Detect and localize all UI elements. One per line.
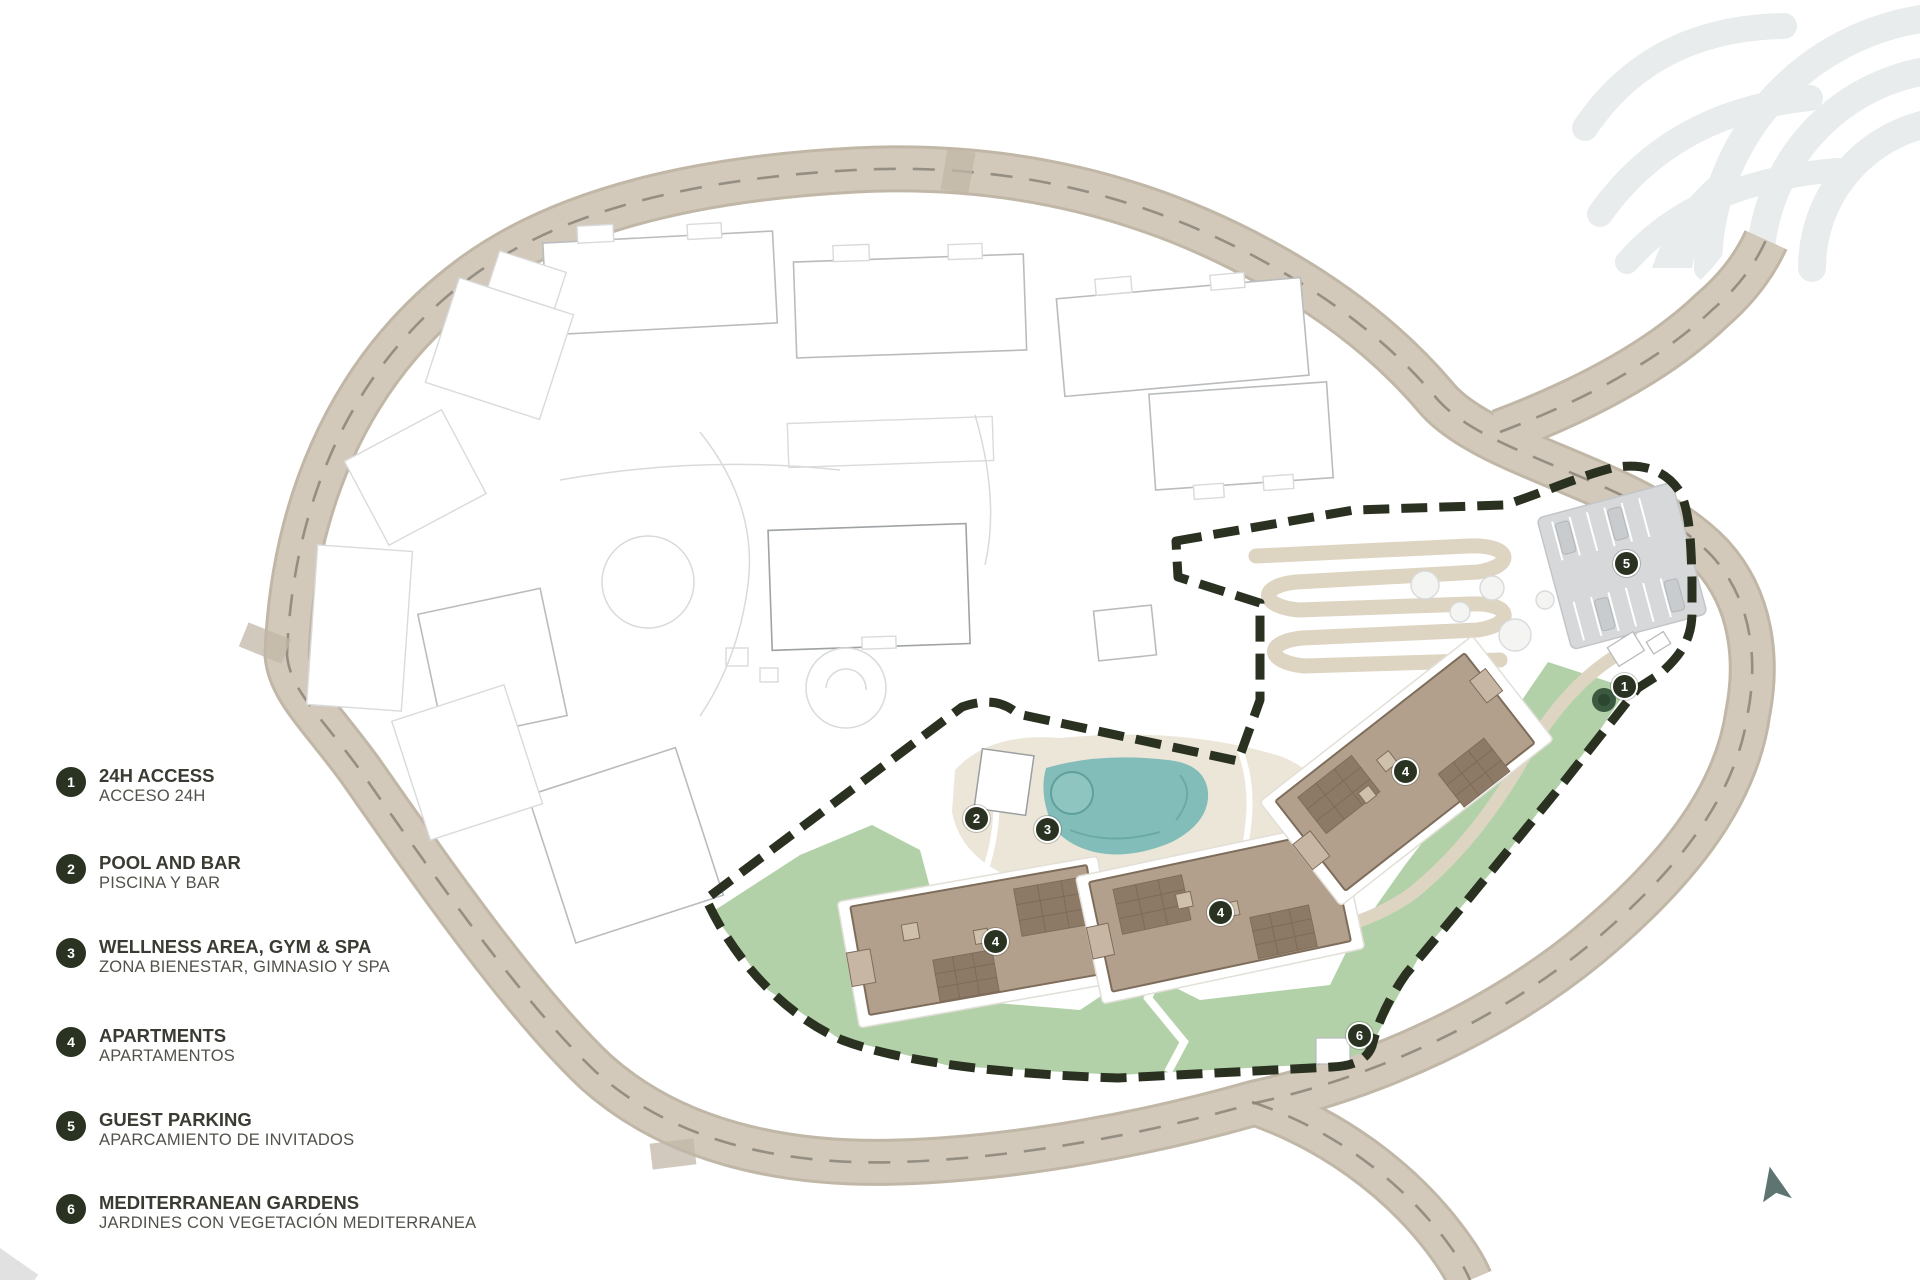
tree-center: [1598, 694, 1610, 706]
legend-number-badge: 1: [56, 767, 86, 797]
legend-number-badge: 6: [56, 1194, 86, 1224]
map-marker-6: 6: [1346, 1022, 1373, 1049]
legend-item-2: 2POOL AND BARPISCINA Y BAR: [56, 853, 241, 893]
legend-number-badge: 4: [56, 1027, 86, 1057]
legend-number-badge: 3: [56, 938, 86, 968]
legend-title: POOL AND BAR: [99, 853, 241, 873]
legend-title: MEDITERRANEAN GARDENS: [99, 1193, 476, 1213]
legend-subtitle: ACCESO 24H: [99, 787, 215, 806]
legend-title: WELLNESS AREA, GYM & SPA: [99, 937, 390, 957]
map-marker-4: 4: [1392, 758, 1419, 785]
legend-number-badge: 2: [56, 854, 86, 884]
legend-subtitle: JARDINES CON VEGETACIÓN MEDITERRANEA: [99, 1214, 476, 1233]
legend-item-4: 4APARTMENTSAPARTAMENTOS: [56, 1026, 235, 1066]
jacuzzi-circle: [1051, 772, 1093, 814]
site-plan-map: [0, 0, 1920, 1280]
corner-sliver: [0, 1247, 38, 1280]
map-marker-3: 3: [1034, 816, 1061, 843]
map-marker-4: 4: [982, 928, 1009, 955]
map-marker-1: 1: [1611, 673, 1638, 700]
legend-item-5: 5GUEST PARKINGAPARCAMIENTO DE INVITADOS: [56, 1110, 354, 1150]
legend-item-6: 6MEDITERRANEAN GARDENSJARDINES CON VEGET…: [56, 1193, 476, 1233]
legend-subtitle: APARCAMIENTO DE INVITADOS: [99, 1131, 354, 1150]
map-marker-5: 5: [1613, 550, 1640, 577]
legend-title: APARTMENTS: [99, 1026, 235, 1046]
legend-subtitle: ZONA BIENESTAR, GIMNASIO Y SPA: [99, 958, 390, 977]
brand-arc-watermark: [1585, 16, 1920, 268]
map-marker-2: 2: [963, 805, 990, 832]
masterplan-page: 124H ACCESSACCESO 24H2POOL AND BARPISCIN…: [0, 0, 1920, 1280]
map-marker-4: 4: [1207, 899, 1234, 926]
legend-title: GUEST PARKING: [99, 1110, 354, 1130]
legend-subtitle: PISCINA Y BAR: [99, 874, 241, 893]
legend-title: 24H ACCESS: [99, 766, 215, 786]
garden-shed: [1316, 1038, 1350, 1064]
legend-number-badge: 5: [56, 1111, 86, 1141]
crosswalk: [650, 1138, 697, 1169]
legend-item-1: 124H ACCESSACCESO 24H: [56, 766, 215, 806]
legend-item-3: 3WELLNESS AREA, GYM & SPAZONA BIENESTAR,…: [56, 937, 390, 977]
pool-bar-building: [974, 749, 1034, 816]
legend-subtitle: APARTAMENTOS: [99, 1047, 235, 1066]
north-arrow-icon: [1743, 1156, 1807, 1220]
